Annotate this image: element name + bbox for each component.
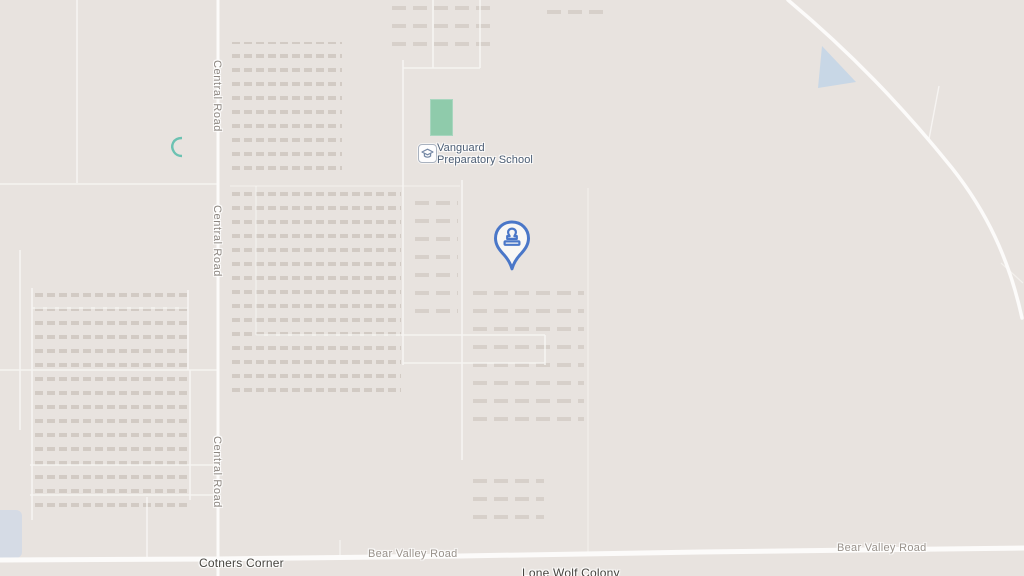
school-field [430,99,453,136]
water-pond [818,46,856,88]
creek-line [172,138,182,156]
school-name-line2: Preparatory School [437,154,533,166]
roads-layer [0,0,1024,576]
map-canvas[interactable]: Vanguard Preparatory School Central Road… [0,0,1024,576]
central-road-label-bottom: Central Road [211,436,223,508]
central-road-label-top: Central Road [211,60,223,132]
school-poi-label[interactable]: Vanguard Preparatory School [437,142,533,166]
cotners-corner-label: Cotners Corner [199,556,284,570]
minor-streets [0,0,1023,558]
school-icon [421,147,434,160]
school-poi-icon[interactable] [418,144,437,163]
lone-wolf-colony-label: Lone Wolf Colony [522,566,620,576]
bear-valley-road-label-center: Bear Valley Road [368,548,458,560]
school-name-line1: Vanguard [437,142,533,154]
stamp-pin-marker[interactable] [492,220,532,272]
major-roads [0,0,1024,576]
bear-valley-road-label-right: Bear Valley Road [837,542,927,554]
central-road-label-middle: Central Road [211,205,223,277]
